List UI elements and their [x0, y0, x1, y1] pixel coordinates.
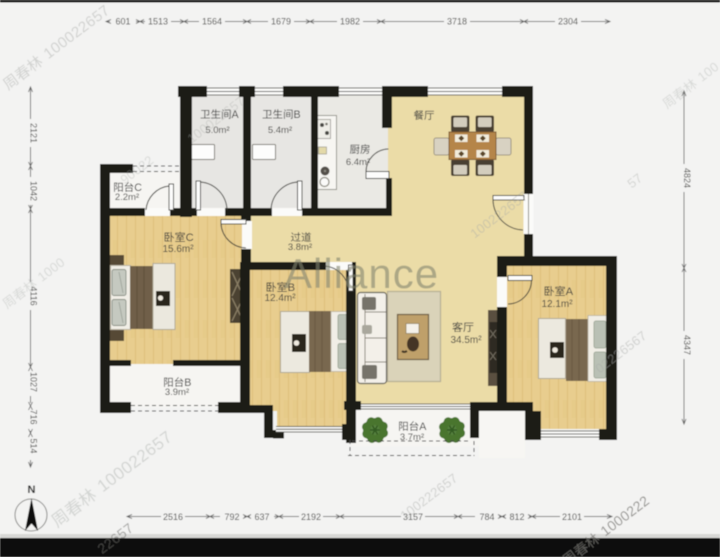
svg-text:1982: 1982: [340, 17, 360, 27]
svg-text:2.2m²: 2.2m²: [115, 192, 139, 203]
svg-text:5.4m²: 5.4m²: [268, 125, 292, 136]
svg-text:3718: 3718: [447, 17, 467, 27]
svg-text:15.6m²: 15.6m²: [162, 244, 194, 255]
svg-text:4116: 4116: [29, 286, 39, 305]
svg-text:792: 792: [224, 512, 239, 522]
svg-text:C: C: [186, 232, 194, 244]
svg-text:3.9m²: 3.9m²: [165, 387, 189, 398]
svg-text:514: 514: [29, 438, 39, 453]
svg-text:2516: 2516: [163, 512, 183, 522]
svg-text:3.7m²: 3.7m²: [400, 432, 424, 443]
svg-text:1027: 1027: [29, 372, 39, 392]
svg-text:Alliance: Alliance: [284, 250, 439, 297]
svg-text:601: 601: [115, 17, 130, 27]
svg-text:4824: 4824: [682, 168, 692, 188]
svg-text:A: A: [566, 286, 574, 298]
svg-text:812: 812: [509, 512, 524, 522]
svg-text:784: 784: [479, 512, 494, 522]
svg-text:1679: 1679: [271, 17, 291, 27]
svg-text:2304: 2304: [558, 17, 578, 27]
svg-text:A: A: [419, 421, 427, 433]
svg-text:N: N: [28, 484, 36, 496]
svg-text:1042: 1042: [29, 181, 39, 201]
svg-text:2192: 2192: [301, 512, 321, 522]
svg-text:716: 716: [29, 409, 39, 424]
svg-text:6.4m²: 6.4m²: [346, 157, 370, 168]
svg-text:2121: 2121: [29, 123, 39, 143]
svg-text:12.1m²: 12.1m²: [541, 299, 573, 310]
svg-text:1513: 1513: [148, 17, 168, 27]
svg-text:B: B: [294, 109, 301, 121]
svg-text:4347: 4347: [682, 335, 692, 355]
svg-text:2101: 2101: [562, 512, 582, 522]
svg-text:34.5m²: 34.5m²: [450, 335, 482, 346]
svg-text:637: 637: [254, 512, 269, 522]
svg-text:1564: 1564: [202, 17, 222, 27]
